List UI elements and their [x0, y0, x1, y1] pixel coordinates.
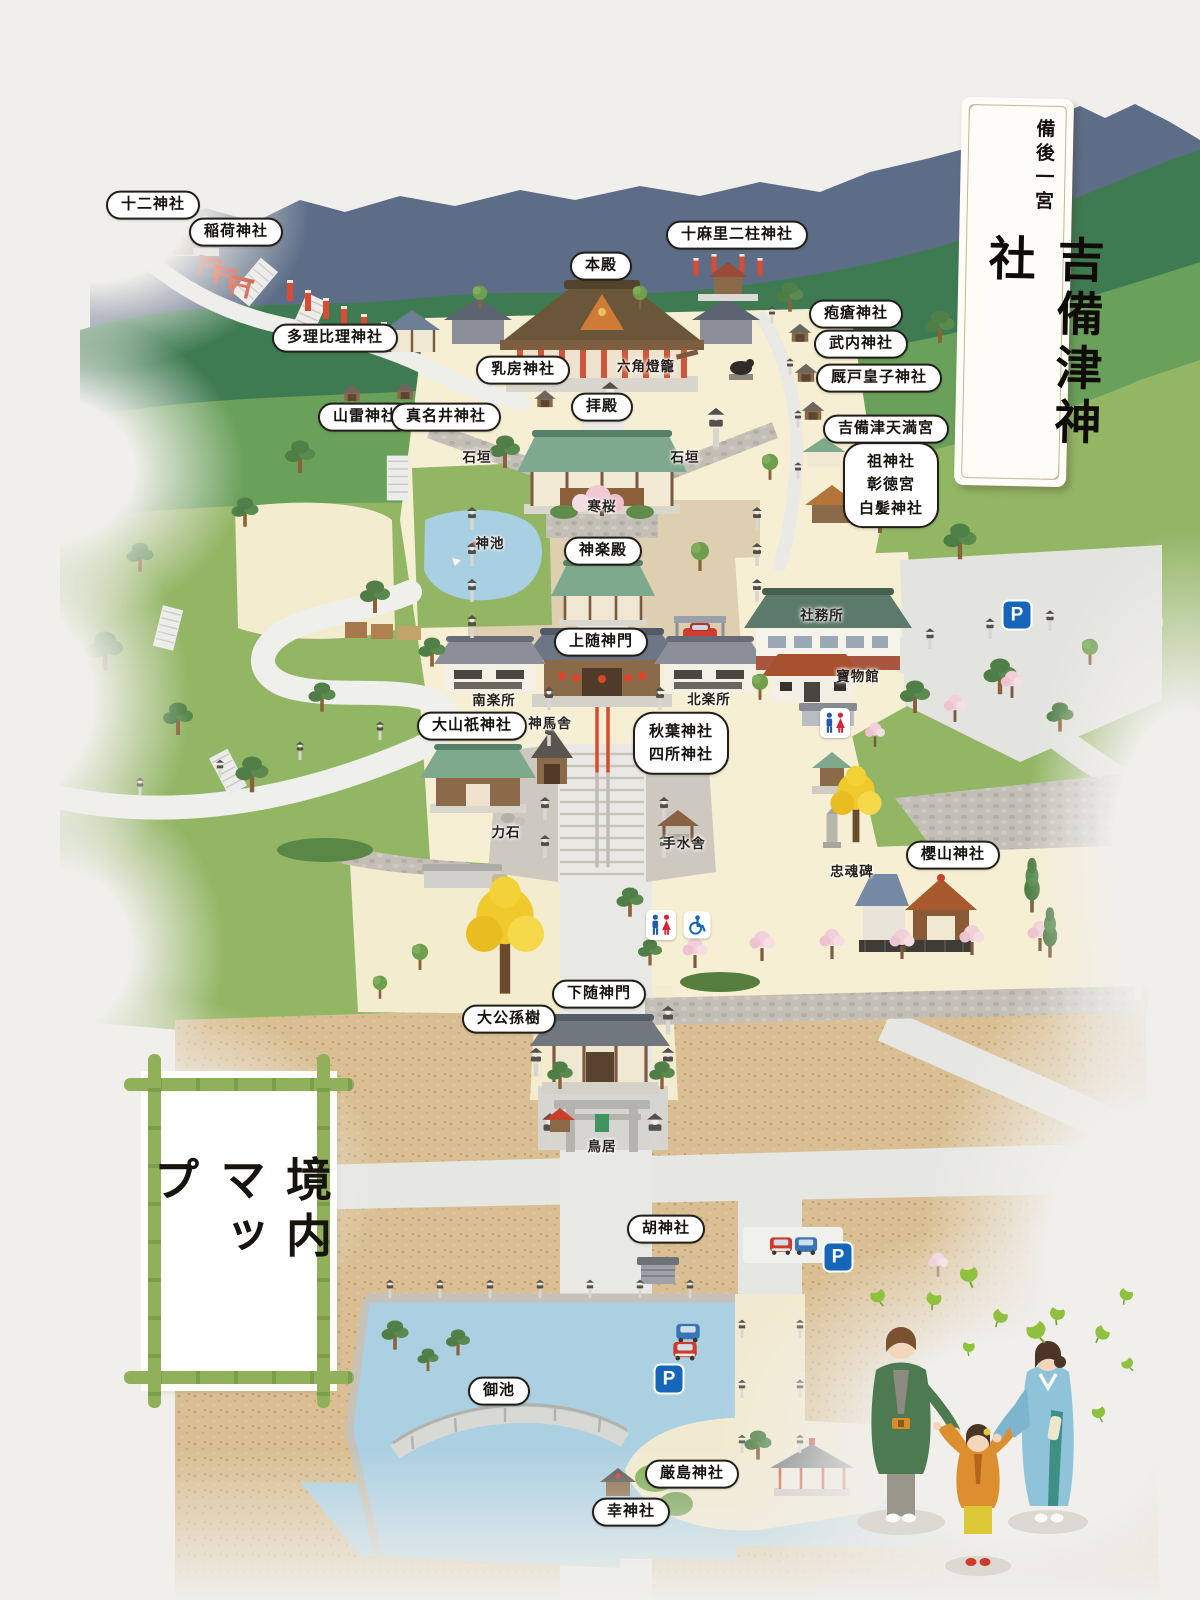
- kita-gakusho-building: [654, 636, 766, 692]
- shrine-title-card: 備後一宮 吉備津神社: [954, 97, 1074, 487]
- minami-gakusho-building: [434, 636, 546, 692]
- shrine-name-title: 吉備津神社: [968, 233, 1111, 488]
- map-title: 境内マップ: [140, 1156, 338, 1307]
- map-title-frame: 境内マップ: [150, 1080, 328, 1382]
- ebisu-shrine-building: [637, 1257, 679, 1284]
- oyamazumi-building: [420, 744, 536, 813]
- restroom-building: [799, 703, 857, 726]
- kaguraden-building: [551, 560, 655, 626]
- shrine-region-title: 備後一宮: [1029, 118, 1058, 215]
- homotsukan-building: [762, 654, 862, 702]
- kamiike-pond: [424, 510, 542, 600]
- shrine-grounds-map: 十二神社稲荷神社多理比理神社山雷神社真名井神社乳房神社本殿十麻里二柱神社疱瘡神社…: [0, 0, 1200, 1600]
